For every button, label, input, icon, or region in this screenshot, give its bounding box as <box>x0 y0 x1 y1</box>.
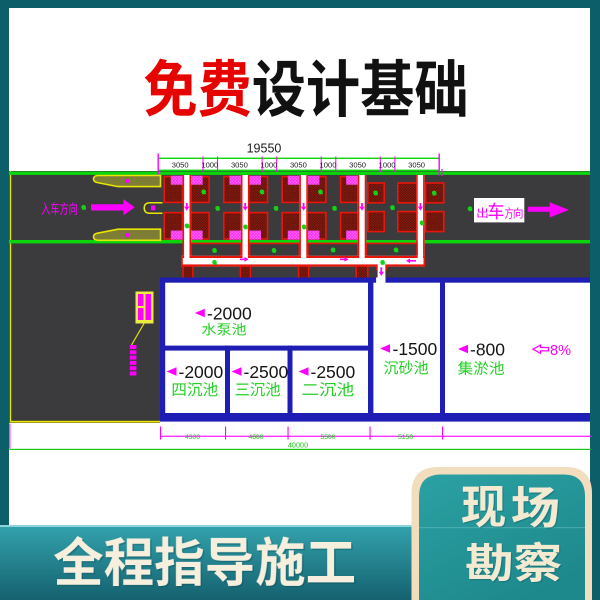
svg-text:4300: 4300 <box>185 434 200 441</box>
svg-text:-2000: -2000 <box>179 362 224 382</box>
svg-text:19550: 19550 <box>247 142 282 156</box>
svg-text:3050: 3050 <box>408 160 425 169</box>
svg-text:3050: 3050 <box>349 160 366 169</box>
svg-text:1000: 1000 <box>201 160 218 169</box>
svg-text:1000: 1000 <box>320 160 337 169</box>
svg-text:-1500: -1500 <box>393 339 438 359</box>
svg-text:1000: 1000 <box>379 160 396 169</box>
svg-text:-2000: -2000 <box>207 304 252 324</box>
svg-text:1000: 1000 <box>260 160 277 169</box>
svg-text:3050: 3050 <box>290 160 307 169</box>
svg-text:-800: -800 <box>470 340 505 360</box>
svg-text:4600: 4600 <box>248 434 263 441</box>
svg-text:3050: 3050 <box>172 160 189 169</box>
svg-text:3050: 3050 <box>231 160 248 169</box>
svg-text:5150: 5150 <box>398 434 413 441</box>
svg-text:5500: 5500 <box>320 434 335 441</box>
svg-text:-2500: -2500 <box>244 362 289 382</box>
svg-text:-2500: -2500 <box>311 362 356 382</box>
svg-text:40000: 40000 <box>288 441 308 450</box>
svg-text:8%: 8% <box>550 343 571 359</box>
